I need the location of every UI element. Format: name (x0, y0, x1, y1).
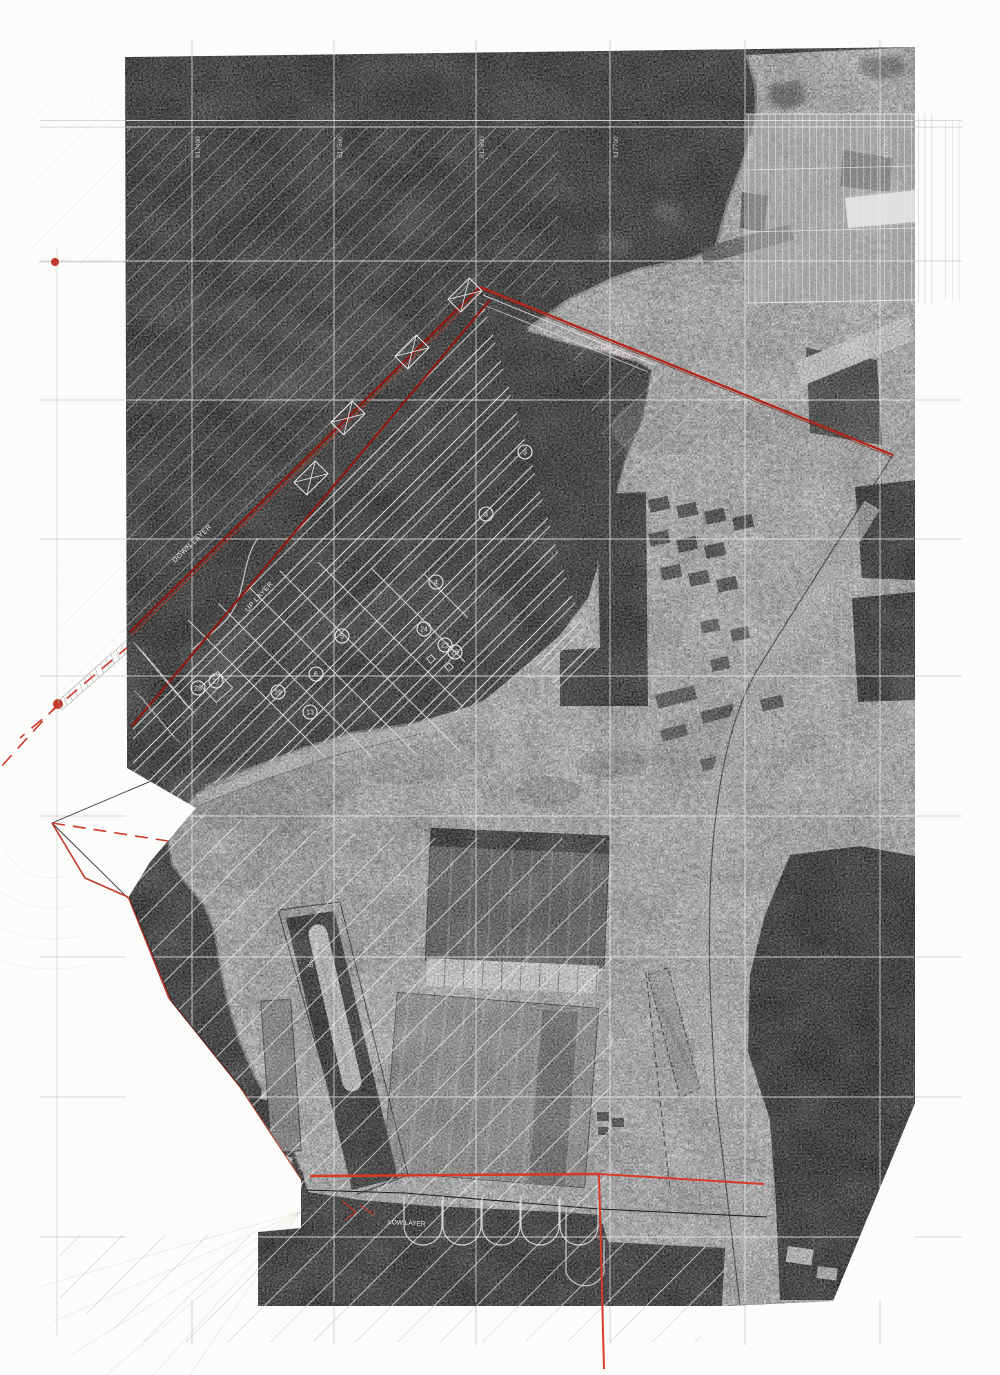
svg-text:5: 5 (340, 634, 344, 641)
svg-text:617500: 617500 (337, 136, 344, 158)
svg-text:617700: 617700 (613, 136, 620, 158)
svg-text:617400: 617400 (195, 136, 202, 158)
svg-text:617800: 617800 (748, 136, 755, 158)
svg-text:617900: 617900 (883, 136, 890, 158)
svg-text:3: 3 (523, 450, 527, 457)
svg-text:6: 6 (314, 672, 318, 679)
svg-text:617600: 617600 (479, 136, 486, 158)
svg-text:13: 13 (306, 710, 314, 717)
svg-text:27: 27 (212, 679, 220, 686)
svg-text:3: 3 (484, 512, 488, 519)
svg-text:26: 26 (274, 690, 282, 697)
svg-text:23: 23 (441, 643, 449, 650)
svg-text:4: 4 (434, 580, 438, 587)
svg-text:25: 25 (451, 650, 459, 657)
svg-text:24: 24 (420, 627, 428, 634)
svg-text:28: 28 (194, 686, 202, 693)
